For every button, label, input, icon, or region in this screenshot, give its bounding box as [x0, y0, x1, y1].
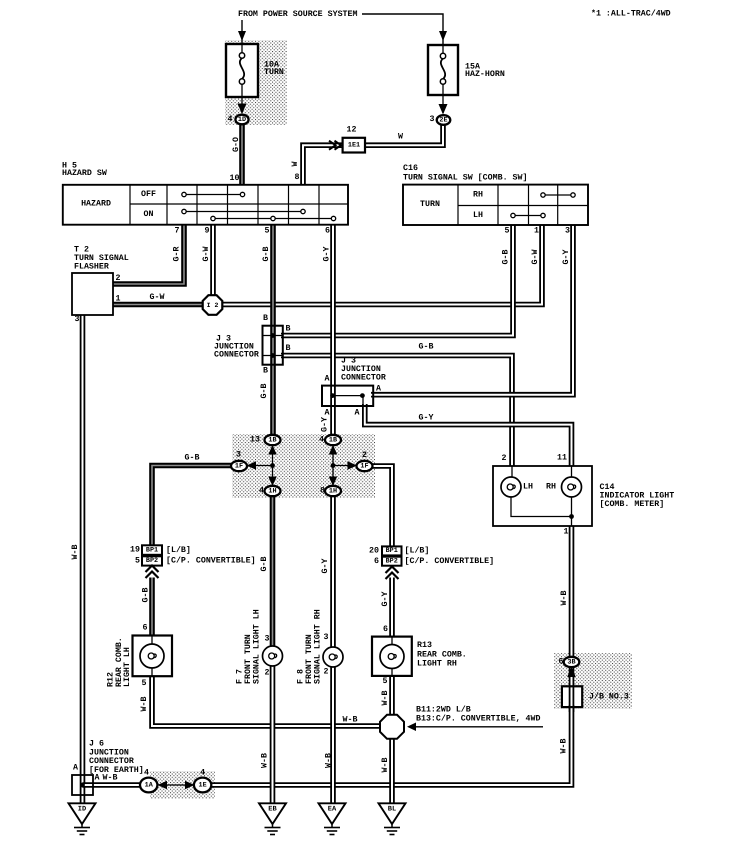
svg-text:HAZARD SW: HAZARD SW: [62, 169, 107, 178]
svg-text:1: 1: [564, 528, 569, 537]
svg-text:I 2: I 2: [207, 302, 219, 309]
svg-text:1: 1: [116, 295, 121, 304]
svg-text:8: 8: [320, 487, 325, 496]
svg-text:A: A: [325, 375, 330, 384]
svg-text:6: 6: [143, 624, 148, 633]
svg-text:11: 11: [557, 454, 567, 463]
svg-text:G-B: G-B: [262, 247, 271, 262]
svg-text:2: 2: [265, 669, 270, 678]
svg-text:2: 2: [502, 454, 507, 463]
svg-text:*1 :ALL-TRAC/4WD: *1 :ALL-TRAC/4WD: [591, 9, 671, 19]
svg-text:[C/P. CONVERTIBLE]: [C/P. CONVERTIBLE]: [166, 556, 256, 566]
svg-text:G-B: G-B: [419, 343, 434, 352]
svg-text:W: W: [291, 161, 300, 166]
svg-text:4: 4: [144, 769, 149, 778]
svg-text:C14: C14: [600, 483, 615, 492]
svg-text:B11:2WD L/B: B11:2WD L/B: [416, 705, 471, 715]
svg-text:G-W: G-W: [150, 293, 165, 302]
svg-text:G-O: G-O: [232, 137, 241, 152]
svg-text:3B: 3B: [567, 658, 575, 666]
svg-text:1F: 1F: [360, 462, 368, 470]
svg-text:TURN: TURN: [264, 68, 284, 77]
svg-text:G-Y: G-Y: [321, 559, 330, 574]
svg-text:C16: C16: [403, 164, 418, 173]
svg-text:W-B: W-B: [103, 774, 118, 783]
svg-text:HAZARD: HAZARD: [81, 200, 111, 209]
svg-text:6: 6: [383, 625, 388, 634]
svg-text:6: 6: [559, 658, 564, 667]
svg-text:[COMB. METER]: [COMB. METER]: [600, 499, 665, 509]
svg-text:ON: ON: [144, 210, 154, 219]
svg-text:W-B: W-B: [261, 753, 270, 768]
svg-text:B: B: [263, 367, 268, 376]
svg-text:3: 3: [75, 315, 80, 324]
svg-text:B: B: [286, 325, 291, 334]
svg-text:3: 3: [324, 633, 329, 642]
svg-text:4: 4: [200, 769, 205, 778]
svg-text:W: W: [398, 133, 403, 142]
svg-text:HAZ-HORN: HAZ-HORN: [465, 70, 505, 79]
svg-text:6: 6: [374, 557, 379, 566]
svg-text:5: 5: [135, 556, 140, 565]
svg-text:G-Y: G-Y: [562, 250, 571, 265]
svg-text:8: 8: [295, 173, 300, 182]
svg-text:SIGNAL LIGHT RH: SIGNAL LIGHT RH: [314, 609, 323, 684]
svg-text:5: 5: [265, 227, 270, 236]
svg-text:BP2: BP2: [386, 558, 398, 566]
svg-text:BP1: BP1: [386, 547, 398, 555]
svg-text:G-B: G-B: [185, 454, 200, 463]
svg-text:A: A: [73, 764, 78, 773]
svg-text:REAR COMB.: REAR COMB.: [417, 650, 467, 659]
svg-text:EB: EB: [268, 806, 277, 814]
svg-text:[L/B]: [L/B]: [405, 546, 430, 556]
svg-text:G-W: G-W: [202, 247, 211, 262]
svg-text:13: 13: [250, 436, 260, 445]
svg-text:12: 12: [347, 126, 357, 135]
svg-text:ID: ID: [78, 806, 86, 814]
svg-text:2: 2: [362, 451, 367, 460]
svg-text:W-B: W-B: [325, 753, 334, 768]
svg-text:W-B: W-B: [343, 716, 358, 725]
svg-text:A: A: [325, 409, 330, 418]
svg-text:LH: LH: [523, 483, 533, 492]
svg-text:4: 4: [319, 436, 324, 445]
svg-text:9: 9: [205, 227, 210, 236]
svg-text:4: 4: [228, 115, 233, 124]
svg-text:3: 3: [430, 115, 435, 124]
svg-text:7: 7: [175, 227, 180, 236]
svg-text:A: A: [376, 385, 381, 394]
svg-text:W-B: W-B: [381, 758, 390, 773]
svg-text:FROM POWER SOURCE SYSTEM: FROM POWER SOURCE SYSTEM: [238, 10, 358, 19]
svg-text:W-B: W-B: [140, 697, 149, 712]
svg-text:1E: 1E: [199, 781, 207, 789]
svg-text:W-B: W-B: [71, 545, 80, 560]
svg-text:G-B: G-B: [142, 588, 151, 603]
svg-text:3: 3: [265, 634, 270, 643]
svg-text:CONNECTOR: CONNECTOR: [214, 351, 259, 360]
svg-text:EA: EA: [328, 806, 337, 814]
svg-text:B: B: [286, 344, 291, 353]
svg-text:[L/B]: [L/B]: [166, 545, 191, 555]
svg-text:2E: 2E: [439, 116, 447, 124]
svg-text:G-Y: G-Y: [381, 592, 390, 607]
svg-text:BL: BL: [388, 806, 396, 814]
svg-text:A: A: [355, 409, 360, 418]
svg-text:J/B NO.3: J/B NO.3: [589, 692, 629, 702]
svg-text:G-Y: G-Y: [323, 247, 332, 262]
svg-text:1E1: 1E1: [348, 142, 360, 150]
svg-text:B: B: [263, 314, 268, 323]
svg-text:G-B: G-B: [260, 557, 269, 572]
svg-text:A: A: [95, 774, 100, 783]
svg-text:3: 3: [565, 227, 570, 236]
svg-text:LIGHT LH: LIGHT LH: [123, 647, 132, 687]
svg-text:2: 2: [116, 274, 121, 283]
svg-text:TURN: TURN: [420, 200, 440, 209]
svg-text:CONNECTOR: CONNECTOR: [89, 757, 134, 766]
svg-text:W-B: W-B: [560, 739, 569, 754]
svg-text:1B: 1B: [329, 436, 337, 444]
svg-text:1: 1: [534, 227, 539, 236]
svg-text:W-B: W-B: [381, 691, 390, 706]
svg-text:1A: 1A: [145, 781, 154, 789]
svg-text:5: 5: [505, 227, 510, 236]
svg-text:J 6: J 6: [89, 740, 104, 749]
svg-text:1H: 1H: [329, 487, 337, 495]
svg-text:G-B: G-B: [502, 250, 511, 265]
svg-text:JUNCTION: JUNCTION: [89, 748, 129, 757]
svg-text:SIGNAL LIGHT LH: SIGNAL LIGHT LH: [253, 609, 262, 684]
svg-text:LIGHT RH: LIGHT RH: [417, 660, 457, 669]
svg-text:1H: 1H: [268, 487, 276, 495]
svg-text:1B: 1B: [268, 436, 276, 444]
svg-text:6: 6: [325, 227, 330, 236]
svg-text:RH: RH: [546, 483, 556, 492]
svg-text:G-B: G-B: [260, 384, 269, 399]
svg-text:R13: R13: [417, 641, 432, 650]
svg-text:W-B: W-B: [560, 591, 569, 606]
svg-text:10: 10: [230, 174, 240, 183]
svg-text:5: 5: [383, 677, 388, 686]
svg-text:2: 2: [324, 668, 329, 677]
svg-text:[C/P. CONVERTIBLE]: [C/P. CONVERTIBLE]: [405, 556, 495, 566]
svg-text:RH: RH: [473, 191, 483, 200]
svg-text:20: 20: [369, 547, 379, 556]
svg-text:B13:C/P. CONVERTIBLE, 4WD: B13:C/P. CONVERTIBLE, 4WD: [416, 713, 540, 723]
svg-text:G-Y: G-Y: [321, 417, 330, 432]
svg-text:FLASHER: FLASHER: [74, 263, 109, 272]
svg-text:G-Y: G-Y: [419, 414, 434, 423]
svg-text:OFF: OFF: [141, 190, 156, 199]
svg-text:LH: LH: [473, 211, 483, 220]
svg-text:TURN SIGNAL SW [COMB. SW]: TURN SIGNAL SW [COMB. SW]: [403, 172, 527, 182]
svg-text:CONNECTOR: CONNECTOR: [341, 373, 386, 382]
svg-text:G-R: G-R: [173, 247, 182, 262]
svg-text:5: 5: [142, 679, 147, 688]
svg-text:4: 4: [259, 487, 264, 496]
svg-text:1D: 1D: [238, 116, 246, 124]
svg-text:19: 19: [130, 546, 140, 555]
svg-text:BP1: BP1: [146, 546, 158, 554]
svg-text:3: 3: [236, 451, 241, 460]
svg-text:1F: 1F: [235, 462, 243, 470]
svg-text:G-W: G-W: [531, 250, 540, 265]
